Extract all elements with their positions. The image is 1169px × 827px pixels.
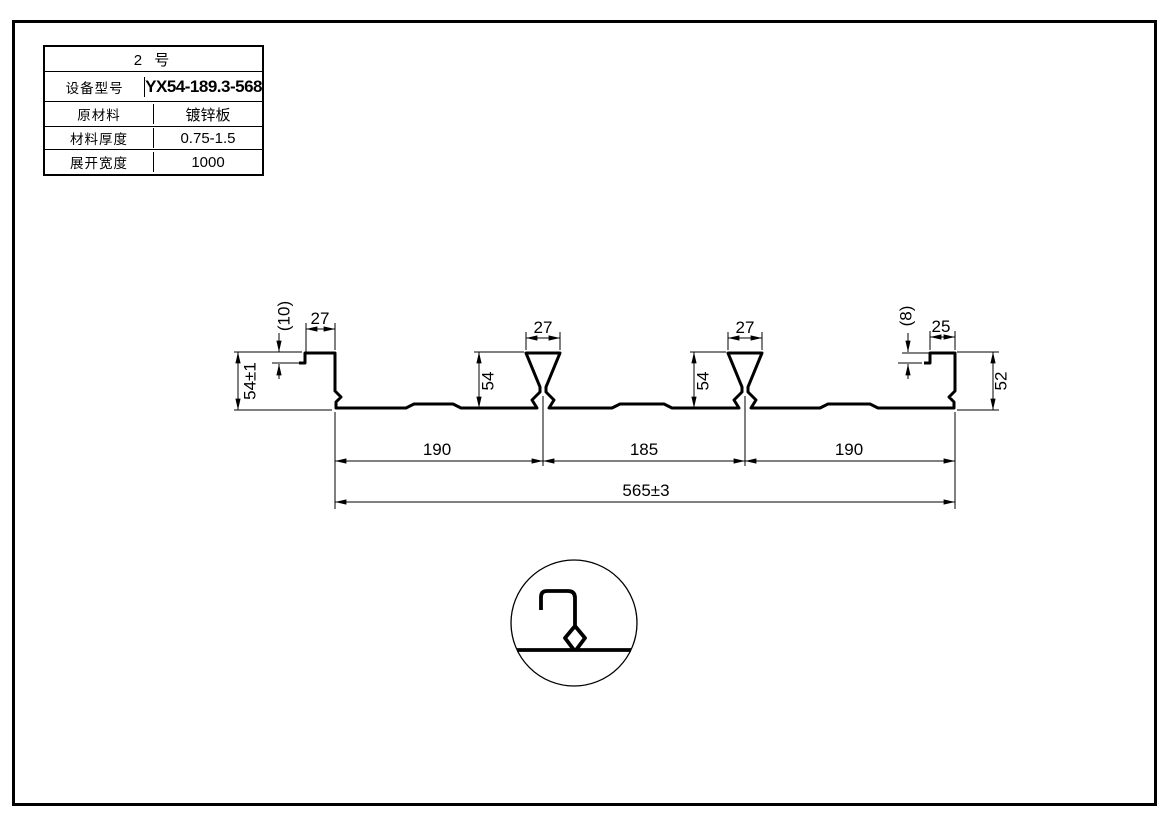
dim-left-step-label: (10) (275, 301, 294, 331)
dim-rib1-height-label: 54 (479, 372, 498, 391)
dim-left-flange-label: 27 (311, 309, 330, 328)
dim-span-left-label: 190 (423, 440, 451, 459)
dim-overall-width-label: 565±3 (622, 481, 669, 500)
profile-outline (299, 353, 955, 408)
dim-rib2-width-label: 27 (736, 318, 755, 337)
dim-span-right-label: 190 (835, 440, 863, 459)
seam-detail-view (511, 560, 637, 686)
dim-right-height-label: 52 (992, 372, 1011, 391)
dimension-labels: (10) 27 54±1 27 54 27 54 (8) 25 52 190 1… (241, 301, 1011, 500)
dim-left-height-label: 54±1 (241, 362, 260, 400)
dim-right-flange-label: 25 (932, 317, 951, 336)
dimension-lines (234, 323, 999, 509)
detail-seam-outline (541, 591, 585, 650)
dim-rib2-height-label: 54 (694, 372, 713, 391)
profile-drawing: (10) 27 54±1 27 54 27 54 (8) 25 52 190 1… (0, 0, 1169, 827)
dim-rib1-width-label: 27 (534, 318, 553, 337)
dim-right-step-label: (8) (897, 306, 916, 327)
dim-span-mid-label: 185 (630, 440, 658, 459)
